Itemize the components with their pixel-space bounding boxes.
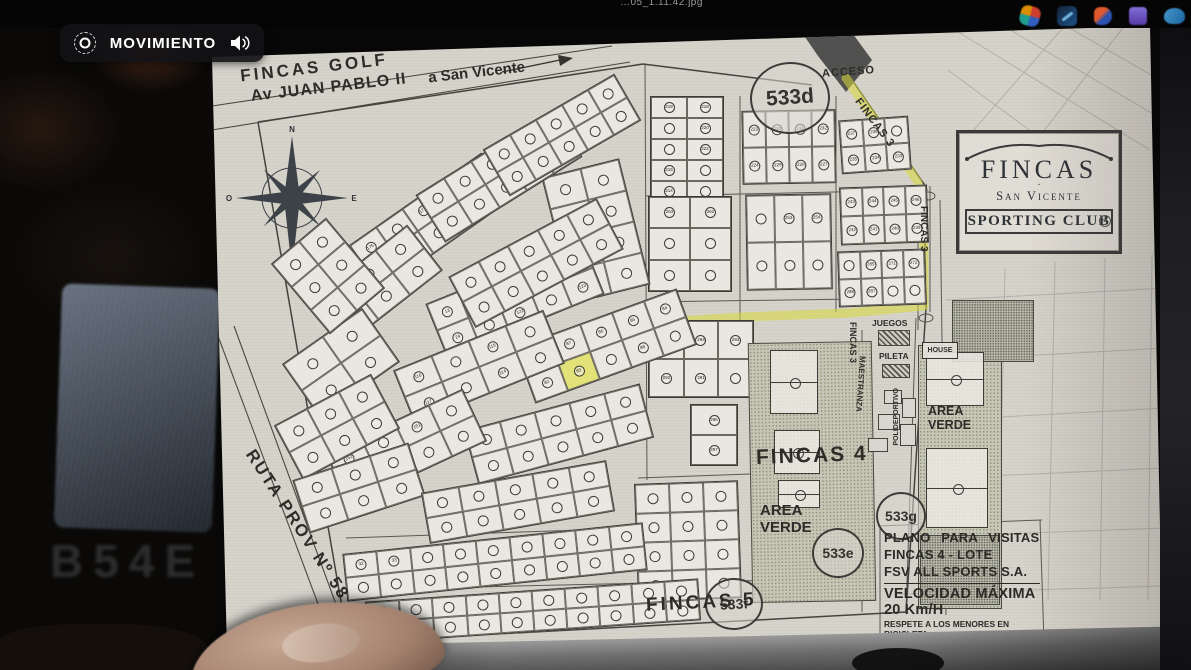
svg-text:O: O	[226, 194, 232, 203]
lot-cell	[379, 571, 415, 597]
lot-cell: 291	[684, 359, 719, 397]
lot-cell	[467, 613, 502, 635]
fincas-san-vicente-sign: FINCAS · San Vicente 2 SPORTING CLUB	[956, 130, 1122, 254]
building-icon	[902, 398, 916, 418]
lot-block: 285271272288287	[837, 248, 927, 307]
person-shoulder-fabric	[54, 283, 220, 532]
lot-cell	[532, 589, 567, 611]
label-area-verde-1: AREA VERDE	[760, 502, 822, 536]
lot-cell	[478, 560, 514, 586]
label-pileta: PILETA	[879, 351, 909, 361]
fingertip-shadow	[852, 648, 944, 670]
pinwheel-app-icon[interactable]	[1018, 4, 1042, 28]
lot-cell: 245	[883, 186, 905, 215]
label-fincas3-vertical: FINCAS 3	[918, 206, 929, 252]
building-icon	[900, 424, 916, 446]
lot-cell: 227	[812, 146, 836, 182]
sign-sporting-club: SPORTING CLUB	[965, 209, 1113, 234]
lot-cell	[746, 195, 775, 242]
lot-cell	[882, 277, 904, 305]
lot-cell: 297	[691, 435, 737, 465]
lot-cell: 271	[881, 250, 903, 278]
lot-cell	[599, 604, 634, 626]
lot-cell	[498, 591, 533, 613]
lot-cell	[432, 596, 467, 618]
label-fincas4: FINCAS 4	[756, 442, 868, 470]
lot-cell	[500, 499, 541, 530]
house-label-box: HOUSE	[922, 342, 958, 359]
sign-small-mark: 2	[1099, 215, 1111, 227]
lot-cell: 292	[649, 359, 684, 397]
lot-cell	[704, 510, 739, 540]
building-icon	[868, 438, 888, 452]
speaker-icon[interactable]	[230, 34, 250, 52]
screenshot-root: B54E	[0, 0, 1191, 670]
lot-cell: 220	[687, 118, 723, 139]
motion-sensor-icon	[74, 32, 96, 54]
lot-block: 296297	[690, 404, 738, 466]
image-filename: …05_1.11.42.jpg	[620, 0, 703, 10]
lot-cell	[671, 540, 706, 570]
lot-cell: 253	[774, 195, 803, 242]
lot-cell: 215	[651, 160, 687, 181]
lot-cell: 244	[862, 187, 884, 216]
lot-cell	[670, 511, 705, 541]
lot-cell	[573, 486, 614, 517]
lot-cell	[426, 512, 467, 543]
blue-cloud-app-icon[interactable]	[1164, 8, 1185, 24]
blue-pen-app-icon[interactable]	[1057, 6, 1077, 26]
lot-cell	[903, 276, 925, 304]
lot-cell	[703, 481, 738, 511]
lot-cell	[578, 550, 614, 576]
lot-block: 243244245246242241240239	[839, 184, 929, 245]
lot-cell	[512, 557, 548, 583]
lot-cell	[651, 118, 687, 139]
sign-arch	[959, 133, 1119, 163]
lot-cell: 243	[840, 188, 862, 217]
lot-cell: 224	[743, 147, 767, 183]
lot-cell: 296	[691, 405, 737, 435]
lot-cell: 272	[903, 250, 925, 278]
svg-text:E: E	[351, 194, 357, 203]
soccer-field-icon	[770, 350, 818, 414]
lot-cell	[465, 593, 500, 615]
lot-cell	[669, 482, 704, 512]
sign-subtitle: San Vicente	[959, 189, 1119, 203]
lot-cell: 241	[863, 215, 885, 244]
lot-cell	[545, 553, 581, 579]
label-polideportivo: POLIDEPORTIVO	[893, 388, 900, 446]
lot-cell: 240	[884, 214, 906, 243]
motion-overlay-pill: MOVIMIENTO	[60, 24, 264, 62]
lot-cell	[346, 574, 382, 600]
lot-cell: 254	[802, 194, 831, 241]
lot-cell	[412, 567, 448, 593]
lot-cell: 287	[861, 278, 883, 306]
lot-cell	[649, 228, 690, 259]
taskbar-icons	[1020, 6, 1185, 26]
purple-app-icon[interactable]	[1129, 7, 1147, 25]
lot-cell: 222	[687, 139, 723, 160]
lot-cell: 219	[651, 97, 687, 118]
lot-cell: 263	[649, 197, 690, 228]
lot-cell: 234	[864, 144, 888, 172]
lot-cell	[500, 611, 535, 633]
notice-line-1: PLANO PARA VISITAS	[884, 530, 1040, 545]
lot-cell	[747, 242, 776, 289]
soccer-field-icon	[926, 352, 984, 406]
notice-speed-limit: VELOCIDAD MÁXIMA 20 Km/H	[884, 586, 1040, 618]
lot-block: 253254	[745, 193, 833, 290]
lot-cell: 285	[860, 251, 882, 279]
lot-cell	[635, 484, 670, 514]
lot-cell	[705, 539, 740, 569]
lot-cell	[445, 564, 481, 590]
lot-cell	[565, 586, 600, 608]
lot-cell	[533, 609, 568, 631]
lot-cell: 237	[839, 120, 863, 148]
lot-cell	[803, 241, 832, 288]
notice-line-3: FSV ALL SPORTS S.A.	[884, 564, 1040, 579]
lot-cell	[463, 505, 504, 536]
lot-cell: 229	[766, 147, 790, 183]
lot-cell: 262	[690, 197, 731, 228]
lot-cell	[690, 228, 731, 259]
label-fincas3-vertical-2: FINCAS 3	[848, 322, 858, 363]
orange-blue-flame-app-icon[interactable]	[1094, 7, 1112, 25]
lot-block: 263262	[648, 196, 732, 292]
notice-line-2: FINCAS 4 - LOTE	[884, 547, 1040, 562]
lot-cell	[566, 606, 601, 628]
juegos-playground-icon	[878, 330, 910, 346]
label-juegos: JUEGOS	[872, 318, 907, 328]
motion-overlay-label: MOVIMIENTO	[108, 35, 218, 52]
lot-cell	[775, 242, 804, 289]
direction-arrow-icon	[558, 55, 573, 66]
faint-embossed-text: B54E	[50, 534, 205, 588]
soccer-field-icon	[926, 448, 988, 528]
lot-cell	[690, 260, 731, 291]
lot-cell: 218	[687, 97, 723, 118]
lot-cell: 242	[841, 216, 863, 245]
lot-cell	[651, 139, 687, 160]
lot-cell	[649, 260, 690, 291]
label-area-verde-2: AREA VERDE	[928, 404, 980, 432]
lot-cell: 235	[841, 146, 865, 174]
screen-edge-right	[1160, 0, 1191, 670]
lot-cell	[611, 546, 647, 572]
svg-text:N: N	[289, 125, 295, 134]
lot-cell: 228	[789, 147, 813, 183]
lot-cell	[536, 492, 577, 523]
lot-cell	[598, 584, 633, 606]
lot-cell	[687, 160, 723, 181]
thumb-shadow	[0, 624, 208, 670]
pileta-pool-icon	[882, 364, 910, 378]
lot-cell	[838, 252, 860, 280]
lot-cell: 288	[839, 279, 861, 307]
